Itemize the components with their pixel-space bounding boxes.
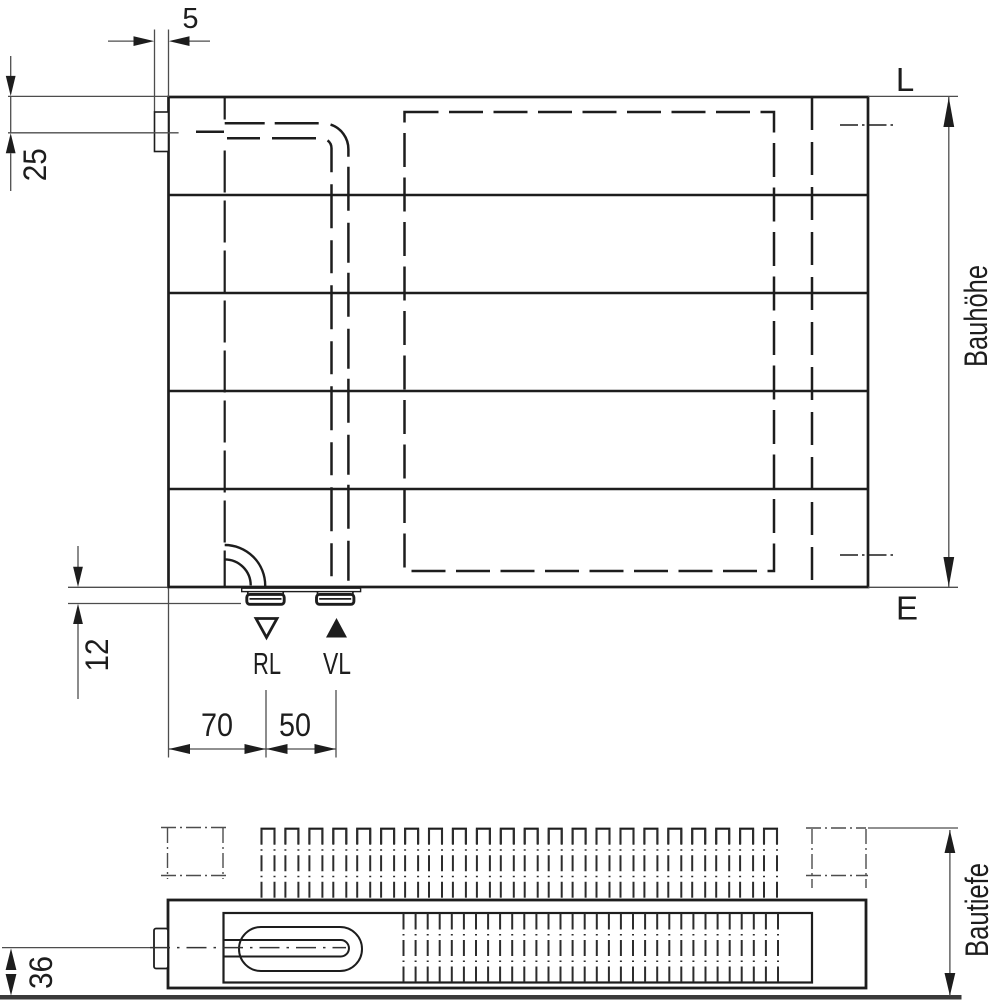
svg-text:50: 50 [279, 707, 311, 743]
svg-text:VL: VL [323, 646, 351, 681]
svg-text:Bautiefe: Bautiefe [959, 863, 995, 957]
svg-text:36: 36 [23, 956, 59, 989]
svg-text:Bauhöhe: Bauhöhe [958, 265, 994, 367]
svg-text:70: 70 [201, 707, 233, 743]
svg-text:RL: RL [253, 646, 281, 681]
svg-text:E: E [896, 590, 918, 627]
svg-text:5: 5 [182, 3, 198, 35]
svg-text:12: 12 [79, 639, 115, 672]
svg-text:25: 25 [17, 148, 53, 181]
svg-text:L: L [896, 61, 914, 98]
